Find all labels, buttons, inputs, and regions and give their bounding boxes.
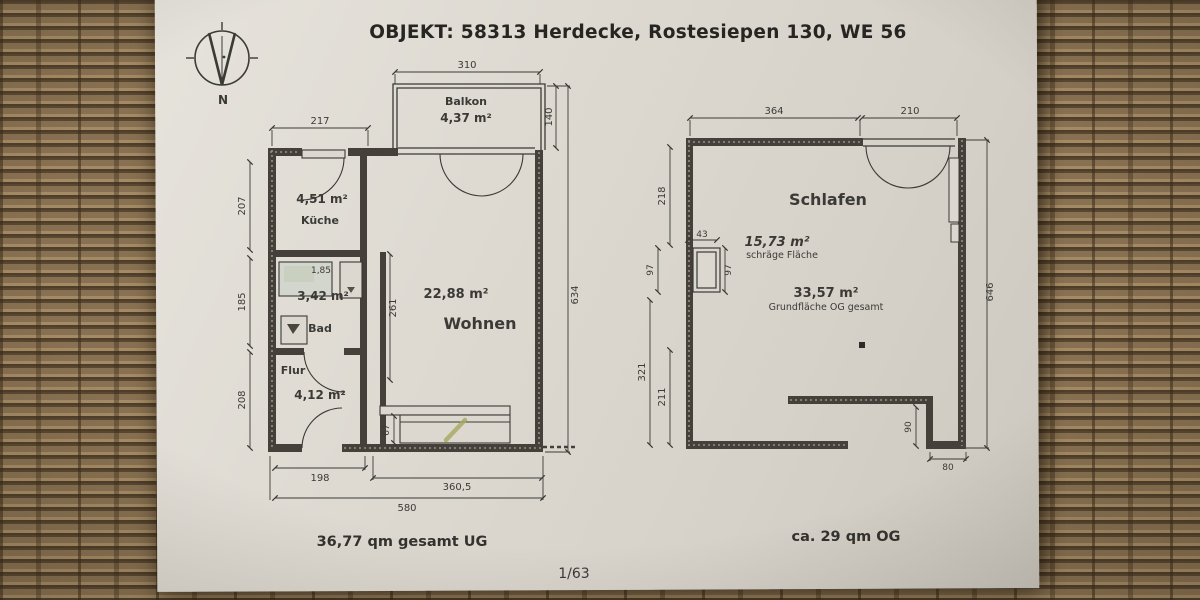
area-kueche: 4,51 m²	[296, 192, 348, 206]
area-sloped-value: 15,73 m²	[745, 235, 810, 250]
dim-flur-height: 208	[237, 390, 248, 409]
page-title: OBJEKT: 58313 Herdecke, Rostesiepen 130,…	[369, 22, 906, 43]
dim-chimney-width: 43	[696, 230, 707, 240]
dim-total-width: 580	[397, 503, 416, 514]
schlafen-door	[863, 139, 955, 188]
area-flur: 4,12 m²	[294, 388, 346, 402]
marker-dot	[859, 342, 865, 348]
area-wohnen: 22,88 m²	[424, 287, 489, 302]
floor-plan-left: 310 140 217 207 185 208 634 261 67 198 3…	[237, 60, 581, 514]
dim-total-height: 634	[570, 285, 581, 304]
dim-top-left: 364	[764, 106, 783, 117]
room-label-schlafen: Schlafen	[789, 190, 867, 209]
floor-plan-right: 364 210 218 43 97 97 321 211 646 90 80 S…	[637, 106, 996, 473]
room-label-flur: Flur	[281, 364, 306, 377]
toilet	[281, 316, 307, 344]
dim-balkon-depth: 140	[544, 107, 555, 126]
footer-og-total: ca. 29 qm OG	[792, 529, 901, 545]
dim-flur-width: 198	[310, 473, 329, 484]
dim-top-right: 210	[900, 106, 919, 117]
dim-kueche-width: 217	[310, 116, 329, 127]
radiator	[380, 406, 510, 443]
room-label-balkon: Balkon	[445, 95, 487, 108]
dim-left-inner: 211	[657, 387, 668, 406]
entry-door	[302, 408, 342, 448]
area-total-value: 33,57 m²	[794, 286, 859, 301]
area-total-label: Grundfläche OG gesamt	[769, 302, 884, 313]
dim-bad-interior: 1,85	[311, 266, 331, 276]
compass-icon: N	[186, 22, 258, 107]
dim-notch-height: 90	[904, 421, 914, 433]
room-label-kueche: Küche	[301, 214, 339, 227]
dim-wohnen-width: 360,5	[443, 482, 472, 493]
chimney-box	[693, 248, 720, 292]
dim-balkon-width: 310	[457, 60, 476, 71]
dim-left-outer: 321	[637, 362, 648, 381]
area-sloped-label: schräge Fläche	[746, 250, 818, 261]
dim-kueche-height: 207	[237, 196, 248, 215]
room-label-wohnen: Wohnen	[443, 314, 516, 333]
dim-chimney-left: 97	[646, 264, 656, 275]
floor-plan-drawing: OBJEKT: 58313 Herdecke, Rostesiepen 130,…	[0, 0, 1200, 600]
page-number: 1/63	[558, 566, 589, 582]
dim-right-total: 646	[985, 282, 996, 301]
dim-bad-height: 185	[237, 292, 248, 311]
room-label-bad: Bad	[308, 322, 332, 335]
dim-left-upper: 218	[657, 186, 668, 205]
dim-chimney-right: 97	[724, 264, 734, 275]
bath-door	[304, 352, 344, 392]
dim-radiator: 67	[382, 424, 392, 435]
area-bad: 3,42 m²	[297, 289, 349, 303]
footer-ug-total: 36,77 qm gesamt UG	[317, 534, 488, 550]
compass-north-label: N	[218, 93, 228, 107]
photo-of-floor-plan: OBJEKT: 58313 Herdecke, Rostesiepen 130,…	[0, 0, 1200, 600]
window-right-wall	[949, 158, 959, 242]
area-balkon: 4,37 m²	[440, 111, 492, 125]
dim-notch-width: 80	[942, 463, 954, 473]
balcony-door-arcs	[440, 154, 523, 196]
dim-wohnen-height: 261	[388, 298, 399, 317]
